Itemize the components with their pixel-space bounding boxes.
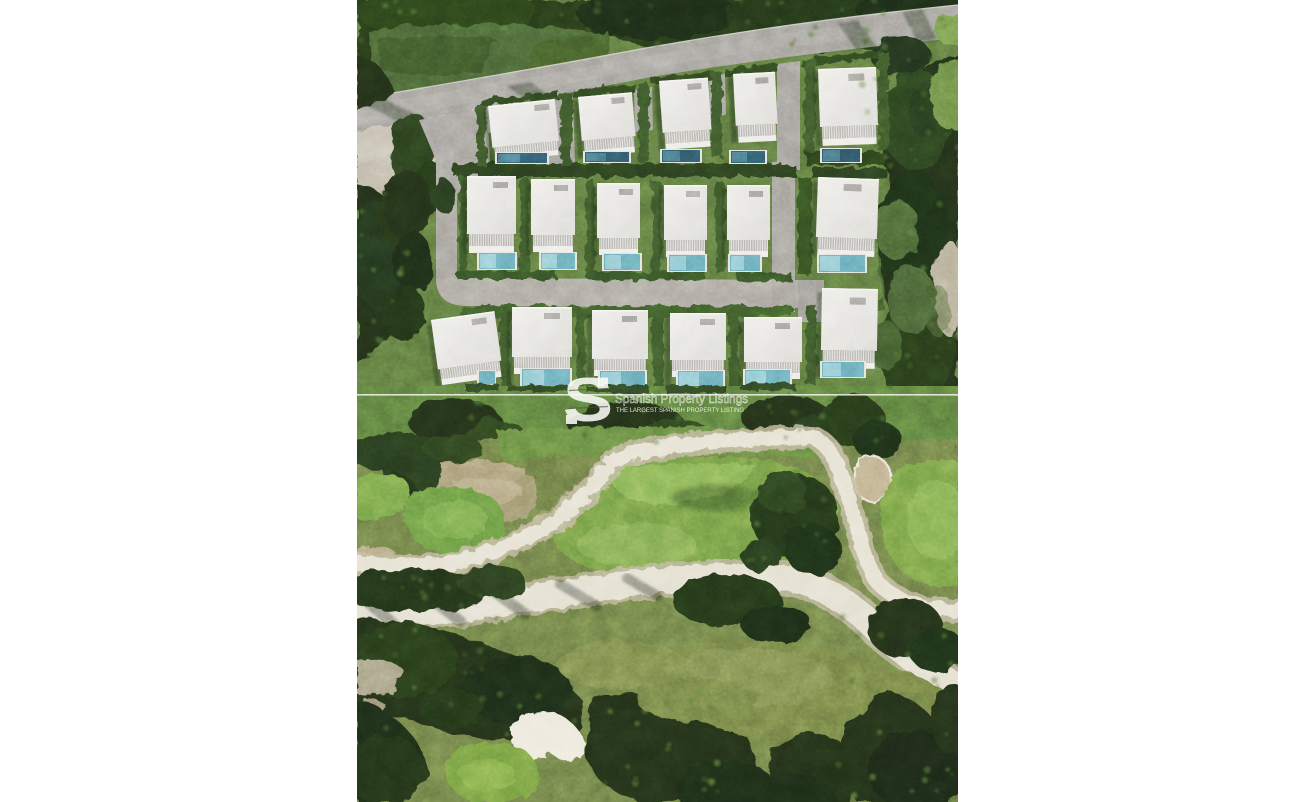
svg-text:THE LARGEST SPANISH PROPERTY L: THE LARGEST SPANISH PROPERTY LISTING [616, 407, 744, 414]
svg-text:Spanish Property Listings: Spanish Property Listings [615, 391, 748, 406]
